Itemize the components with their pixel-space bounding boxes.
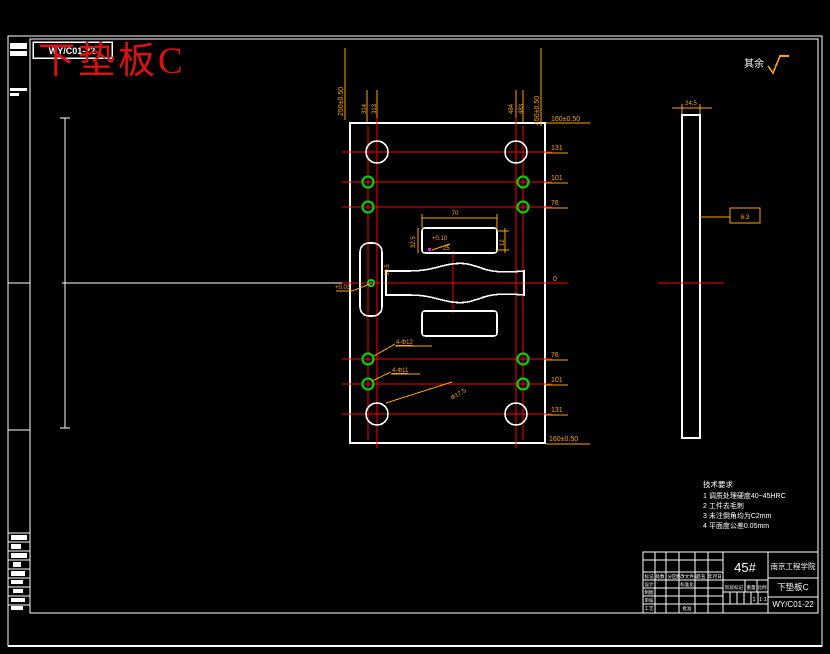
dim-x-right-b: 483 (519, 103, 525, 114)
part-name: 下垫板C (777, 582, 809, 592)
tb-cell: 年月日 (708, 573, 722, 580)
note-line: 2 工件去毛刺 (703, 501, 744, 510)
tb-cell: 标准化 (680, 581, 694, 588)
tb-mid-label: 比例 (758, 584, 767, 591)
dim-side-finish: 6.3 (741, 215, 750, 221)
dim-slot-width: 70 (452, 211, 459, 217)
dim-side-thickness: 24.5 (685, 101, 697, 107)
tb-cell: 制图 (645, 589, 654, 596)
tb-cell: 工艺 (645, 606, 654, 611)
dim-slot-radius: 25 (443, 246, 450, 252)
dim-ord-0: 0 (553, 276, 557, 283)
tb-qty: 1 (752, 597, 755, 603)
tb-mid-label: 重量 (747, 584, 756, 591)
note-line: 4 平面度公差0.05mm (703, 521, 769, 530)
dim-x-left-b: 313 (372, 103, 378, 114)
material-label: 45# (734, 560, 756, 575)
tb-mid-label: 阶段标记 (725, 584, 743, 591)
tb-scale: 1:1 (759, 597, 767, 603)
sheet-big-title: 下垫板C (38, 41, 186, 82)
cad-canvas: WY/C01-22 下垫板C 其余 (0, 0, 830, 654)
dim-ord-bot: 160±0.50 (549, 436, 578, 443)
dim-slot-side: 12 (500, 239, 506, 246)
note-line: 3 未注倒角均为C2mm (703, 511, 772, 520)
notes-title: 技术要求 (703, 479, 733, 489)
dim-x-left-a: 314 (362, 103, 368, 114)
note-line: 1 调质处理硬度40~45HRC (703, 491, 786, 500)
section-lines (60, 118, 345, 428)
roughness-check-icon (768, 56, 789, 73)
title-block: 南京工程学院 下垫板C WY/C01-22 45# 阶段标记 重量 比例 1 1… (643, 552, 818, 613)
dim-ord-76-bot: 76 (551, 352, 559, 359)
callout-big-hole: Φ17.5 (450, 388, 468, 402)
tb-cell: 审核 (645, 597, 654, 604)
part-code: WY/C01-22 (772, 600, 814, 609)
dim-ord-131-top: 131 (551, 145, 563, 152)
dim-right-height: 450±0.50 (534, 96, 541, 125)
roughness-rest: 其余 (744, 56, 789, 73)
dim-left-slot-len: 30.5 (385, 264, 391, 276)
dim-ord-76-top: 76 (551, 200, 559, 207)
dim-ord-101-bot: 101 (551, 377, 563, 384)
dim-slot-tol: +0.10 (432, 236, 448, 242)
tb-cell: 设计 (645, 581, 654, 588)
dim-ord-top: 160±0.50 (551, 116, 580, 123)
tb-cell: 更改文件号 (676, 573, 699, 580)
side-title-strip (8, 533, 30, 610)
margin-marks (8, 43, 30, 430)
side-view-outline (682, 115, 700, 438)
dim-left-height: 250±0.50 (338, 87, 345, 116)
tb-cell: 批准 (683, 605, 692, 612)
dim-ord-131-bot: 131 (551, 407, 563, 414)
technical-notes: 技术要求 1 调质处理硬度40~45HRC 2 工件去毛刺 3 未注倒角均为C2… (703, 479, 786, 530)
org-name: 南京工程学院 (771, 561, 816, 571)
dim-ord-101-top: 101 (551, 175, 563, 182)
tb-cell: 标记 (645, 573, 654, 580)
tb-cell: 处数 (656, 573, 665, 580)
tb-cell: 签名 (697, 573, 706, 580)
dim-x-right-a: 484 (509, 103, 515, 114)
rest-label: 其余 (744, 57, 764, 70)
callout-green-b: 4-Φ11 (392, 368, 409, 374)
dim-slot-height: 32.5 (411, 236, 417, 248)
side-view: 24.5 6.3 (658, 101, 760, 438)
dim-left-slot-tol: +0.03 (335, 285, 351, 291)
callout-green-a: 4-Φ12 (396, 340, 413, 346)
